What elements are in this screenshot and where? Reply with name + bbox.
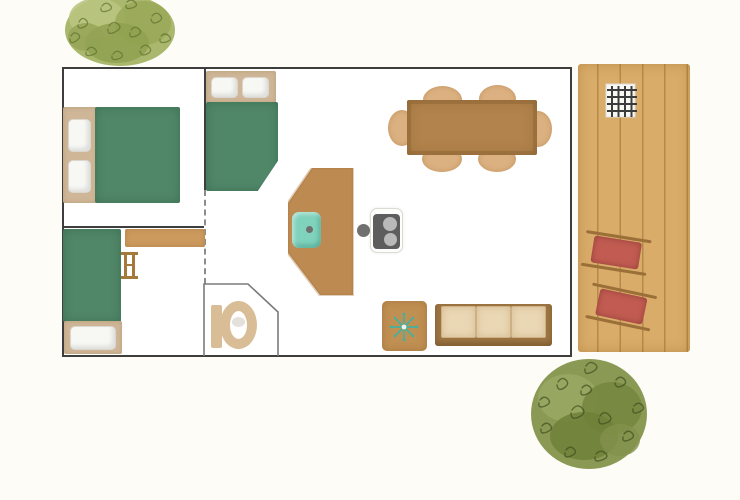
- sofa-cushion: [476, 306, 511, 338]
- snowflake-icon: [382, 301, 427, 351]
- pillow: [211, 77, 238, 98]
- barbecue-grill-icon: [602, 80, 640, 122]
- sofa-cushion: [441, 306, 476, 338]
- burner-icon: [383, 217, 397, 231]
- sofa-cushions: [441, 306, 546, 338]
- interior-wall: [64, 226, 204, 228]
- floor-plan-canvas: [0, 0, 740, 500]
- double-bed-mattress: [95, 107, 180, 203]
- pillow: [70, 326, 116, 350]
- hob-knob-icon: [357, 224, 370, 237]
- sun-lounger: [580, 224, 651, 283]
- dining-table: [407, 100, 537, 155]
- sofa-cushion: [511, 306, 546, 338]
- tree-top-left: [57, 0, 183, 72]
- bunk-ladder-icon: [121, 252, 138, 279]
- pillow: [68, 160, 91, 193]
- toilet-bowl: [220, 301, 257, 349]
- pillow: [68, 119, 91, 152]
- single-bed-mattress: [63, 229, 121, 322]
- burner-icon: [384, 233, 397, 246]
- tree-bottom-right: [524, 354, 656, 476]
- sink-drain-icon: [306, 226, 313, 233]
- toilet-water: [232, 317, 245, 327]
- pillow: [242, 77, 269, 98]
- shelf-unit: [125, 229, 205, 247]
